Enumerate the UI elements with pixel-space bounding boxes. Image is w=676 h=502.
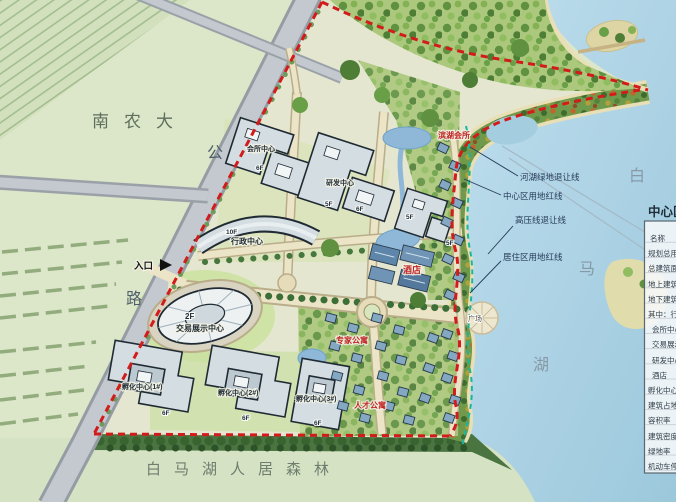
road-label-gong: 公 <box>207 145 223 162</box>
floor-tag: 6F <box>356 206 364 213</box>
entrance-label: 入口 <box>133 261 153 272</box>
floor-tag: 6F <box>256 165 264 172</box>
legend-row: 孵化中心 <box>648 385 676 395</box>
legend-row: 名称 <box>650 233 665 243</box>
legend-row: 规划总用地面积 <box>648 248 676 258</box>
legend-row: 酒店 <box>652 370 667 380</box>
floor-tag: 6F <box>162 410 170 417</box>
floor-tag: 5F <box>325 201 333 208</box>
floor-tag: 2F <box>185 312 194 321</box>
legend-row: 绿地率 <box>648 446 671 456</box>
road-label-lu: 路 <box>126 290 142 308</box>
legend-table: 中心区经济技术指标 名称 规划总用地面积 总建筑面积 地上建筑面积 地下建筑面积… <box>645 204 676 473</box>
floor-tag: 5F <box>446 240 454 247</box>
map-canvas: 中心区经济技术指标 名称 规划总用地面积 总建筑面积 地上建筑面积 地下建筑面积… <box>0 0 676 502</box>
label-trade-center: 交易展示中心 <box>176 323 224 333</box>
legend-row: 机动车停车位 <box>648 461 676 471</box>
legend-row: 其中：行政中心 <box>648 309 676 319</box>
legend-row: 容积率 <box>648 415 671 425</box>
red-label-hotel: 酒店 <box>403 264 421 275</box>
lake-label-hu: 湖 <box>533 356 549 374</box>
building-incubator-3 <box>291 358 349 429</box>
lake-label-bai: 白 <box>629 167 645 185</box>
legend-row: 地上建筑面积 <box>648 279 676 289</box>
lake-label-ma: 马 <box>579 260 595 278</box>
islet-tree <box>623 267 633 277</box>
legend-title: 中心区经济技术指标 <box>648 204 676 219</box>
master-plan-map: 中心区经济技术指标 名称 规划总用地面积 总建筑面积 地上建筑面积 地下建筑面积… <box>0 0 676 502</box>
setback-label-center-red: 中心区用地红线 <box>503 191 563 201</box>
legend-row: 交易展示中心 <box>652 339 676 349</box>
red-label-talent-apartments: 人才公寓 <box>354 400 386 410</box>
forest-banner: 白马湖人居森林 <box>146 461 342 478</box>
label-rd-center: 研发中心 <box>326 178 354 187</box>
floor-tag: 10F <box>226 229 237 236</box>
floor-tag: 6F <box>242 415 250 422</box>
label-admin-center: 行政中心 <box>230 236 263 246</box>
legend-row: 地下建筑面积 <box>648 294 676 304</box>
setback-label-river-green: 河湖绿地退让线 <box>520 172 580 182</box>
label-incubator-3: 孵化中心(3#) <box>296 394 336 403</box>
label-incubator-1: 孵化中心(1#) <box>122 382 162 391</box>
legend-row: 会所中心 <box>652 324 676 334</box>
legend-row: 研发中心 <box>652 355 676 365</box>
setback-label-high-voltage: 高压线退让线 <box>515 215 567 225</box>
roundabout <box>357 297 387 327</box>
floor-tag: 5F <box>406 214 414 221</box>
legend-row: 总建筑面积 <box>648 263 676 273</box>
red-label-lakeside-club: 滨湖会所 <box>438 130 470 140</box>
plaza-label: 广场 <box>468 314 482 323</box>
legend-row: 建筑密度 <box>648 431 676 441</box>
legend-row: 建筑占地面积 <box>648 400 676 410</box>
label-club-center: 会所中心 <box>247 144 275 153</box>
small-plaza <box>278 274 296 292</box>
area-label-university: 南农大 <box>92 112 188 131</box>
label-incubator-2: 孵化中心(2#) <box>218 388 258 397</box>
setback-label-residential-red: 居住区用地红线 <box>503 252 563 262</box>
floor-tag: 6F <box>314 420 322 427</box>
red-label-expert-apartments: 专家公寓 <box>336 335 368 345</box>
